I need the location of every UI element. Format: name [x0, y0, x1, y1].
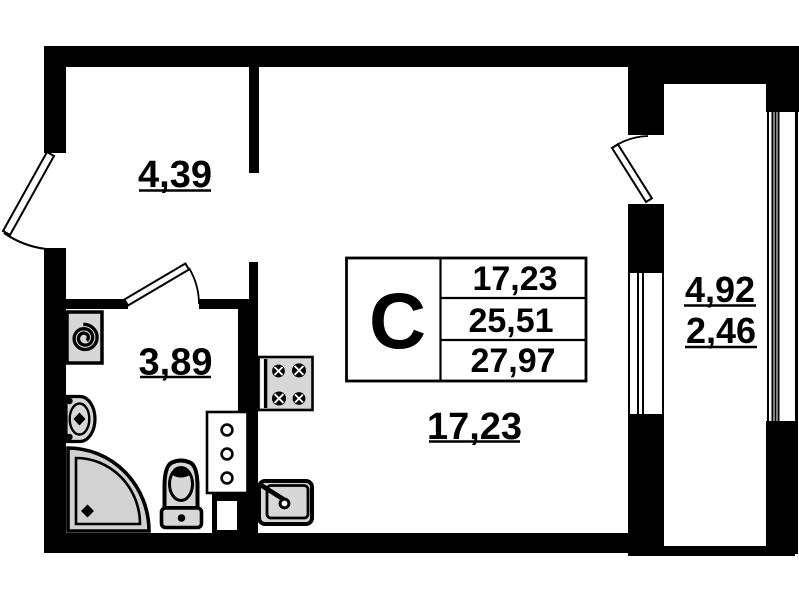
- svg-text:27,97: 27,97: [470, 342, 555, 380]
- svg-text:17,23: 17,23: [472, 260, 557, 298]
- svg-text:2,46: 2,46: [686, 310, 756, 351]
- svg-text:25,51: 25,51: [468, 302, 553, 340]
- svg-text:C: C: [369, 276, 426, 365]
- svg-text:4,92: 4,92: [685, 269, 755, 310]
